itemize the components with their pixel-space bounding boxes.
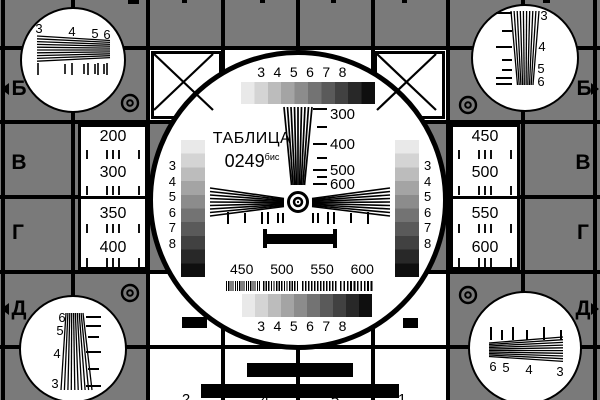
tl-wedge-label: 6 bbox=[101, 28, 113, 42]
grid-vline bbox=[593, 0, 597, 400]
burst-label-600: 600 bbox=[351, 261, 374, 277]
edge-marker-right-g: Г bbox=[572, 221, 594, 244]
left-gray-column-digits: 3 4 5 6 7 8 bbox=[158, 158, 176, 252]
burst-label-500: 500 bbox=[270, 261, 293, 277]
top-grayscale-labels: 3 4 5 6 7 8 bbox=[250, 65, 356, 80]
edge-marker-right-v: В bbox=[572, 151, 594, 174]
tl-wedge-label: 4 bbox=[66, 25, 78, 39]
calibration-bar bbox=[266, 234, 334, 244]
right-cell-600: 600 bbox=[452, 239, 518, 257]
calibration-bar-cap bbox=[333, 229, 337, 248]
card-number-digits: 0249 bbox=[225, 151, 265, 171]
br-wedge-label: 4 bbox=[523, 363, 535, 377]
grid-vline bbox=[1, 0, 5, 400]
right-cell-500: 500 bbox=[452, 164, 518, 182]
gray-digit: 3 bbox=[158, 158, 176, 174]
card-number: 0249бис bbox=[208, 152, 296, 172]
box-divider bbox=[453, 196, 517, 199]
gray-digit: 4 bbox=[158, 174, 176, 190]
bl-wedge-label: 5 bbox=[54, 324, 66, 338]
burst-label-550: 550 bbox=[310, 261, 333, 277]
edge-marker-left-b: Б bbox=[8, 77, 30, 100]
calibration-bar-cap bbox=[263, 229, 267, 248]
gray-digit: 4 bbox=[424, 174, 442, 190]
right-cell-550: 550 bbox=[452, 205, 518, 223]
wedge-label-300: 300 bbox=[330, 107, 366, 124]
gray-digit: 5 bbox=[158, 189, 176, 205]
burst-label-450: 450 bbox=[230, 261, 253, 277]
bottom-cut-label: 4 bbox=[258, 392, 272, 400]
tl-wedge-label: 5 bbox=[89, 27, 101, 41]
black-rect-right bbox=[403, 318, 418, 328]
burst-450 bbox=[226, 281, 260, 291]
gray-digit: 6 bbox=[424, 205, 442, 221]
bl-wedge-label: 3 bbox=[49, 377, 61, 391]
bottom-bar-long bbox=[201, 384, 399, 398]
edge-marker-left-g: Г bbox=[7, 221, 29, 244]
wedge-label-600: 600 bbox=[330, 177, 366, 194]
target-icon bbox=[122, 95, 138, 111]
gray-digit: 7 bbox=[424, 220, 442, 236]
burst-600 bbox=[340, 281, 374, 291]
grayscale-staircase-left bbox=[181, 140, 205, 277]
target-icon bbox=[460, 287, 476, 303]
edge-marker-left-d: Д bbox=[7, 297, 31, 320]
target-icon bbox=[460, 97, 476, 113]
bl-wedge-label: 4 bbox=[51, 347, 63, 361]
card-title: ТАБЛИЦА bbox=[206, 130, 298, 148]
edge-marker-left-v: В bbox=[8, 151, 30, 174]
tl-wedge-label: 3 bbox=[33, 22, 45, 36]
gray-digit: 6 bbox=[158, 205, 176, 221]
left-cell-300: 300 bbox=[80, 164, 146, 182]
box-divider bbox=[81, 196, 145, 199]
corner-circle-top-right bbox=[471, 4, 579, 112]
gray-digit: 5 bbox=[424, 189, 442, 205]
left-cell-350: 350 bbox=[80, 205, 146, 223]
tr-wedge-label: 3 bbox=[538, 9, 550, 23]
gray-digit: 3 bbox=[424, 158, 442, 174]
black-rect-left bbox=[182, 317, 207, 328]
frequency-burst-bar bbox=[226, 281, 374, 291]
burst-500 bbox=[263, 281, 298, 291]
gray-digit: 8 bbox=[158, 236, 176, 252]
tr-wedge-label: 4 bbox=[536, 40, 548, 54]
corner-circle-bottom-left bbox=[19, 295, 127, 400]
bottom-cut-label: 1 bbox=[396, 392, 408, 400]
card-number-suffix: бис bbox=[265, 152, 280, 162]
burst-550 bbox=[302, 281, 337, 291]
gray-digit: 7 bbox=[158, 220, 176, 236]
grayscale-staircase-top bbox=[241, 82, 375, 104]
target-icon bbox=[122, 285, 138, 301]
br-wedge-label: 6 bbox=[487, 360, 499, 374]
edge-marker-right-b: Б bbox=[573, 77, 595, 100]
br-wedge-label: 3 bbox=[554, 365, 566, 379]
tr-wedge-label: 6 bbox=[535, 75, 547, 89]
grayscale-staircase-right bbox=[395, 140, 419, 277]
grayscale-staircase-bottom bbox=[242, 294, 372, 317]
corner-circle-bottom-right bbox=[468, 291, 582, 400]
top-edge-cut-marks bbox=[128, 0, 550, 4]
right-cell-450: 450 bbox=[452, 128, 518, 146]
bottom-grayscale-labels: 3 4 5 6 7 8 bbox=[250, 319, 356, 334]
wedge-label-400: 400 bbox=[330, 137, 366, 154]
br-wedge-label: 5 bbox=[500, 361, 512, 375]
bottom-cut-label: 5 bbox=[327, 392, 343, 400]
left-cell-200: 200 bbox=[80, 128, 146, 146]
bottom-bar-short bbox=[247, 363, 353, 377]
right-gray-column-digits: 3 4 5 6 7 8 bbox=[424, 158, 442, 252]
test-card: Б В Г Д Б В Г Д 200 300 350 400 450 500 … bbox=[0, 0, 600, 400]
edge-marker-right-d: Д bbox=[571, 297, 595, 320]
bottom-cut-label: 2 bbox=[179, 392, 193, 400]
burst-labels-row: 450 500 550 600 bbox=[230, 261, 374, 277]
left-cell-400: 400 bbox=[80, 239, 146, 257]
gray-digit: 8 bbox=[424, 236, 442, 252]
